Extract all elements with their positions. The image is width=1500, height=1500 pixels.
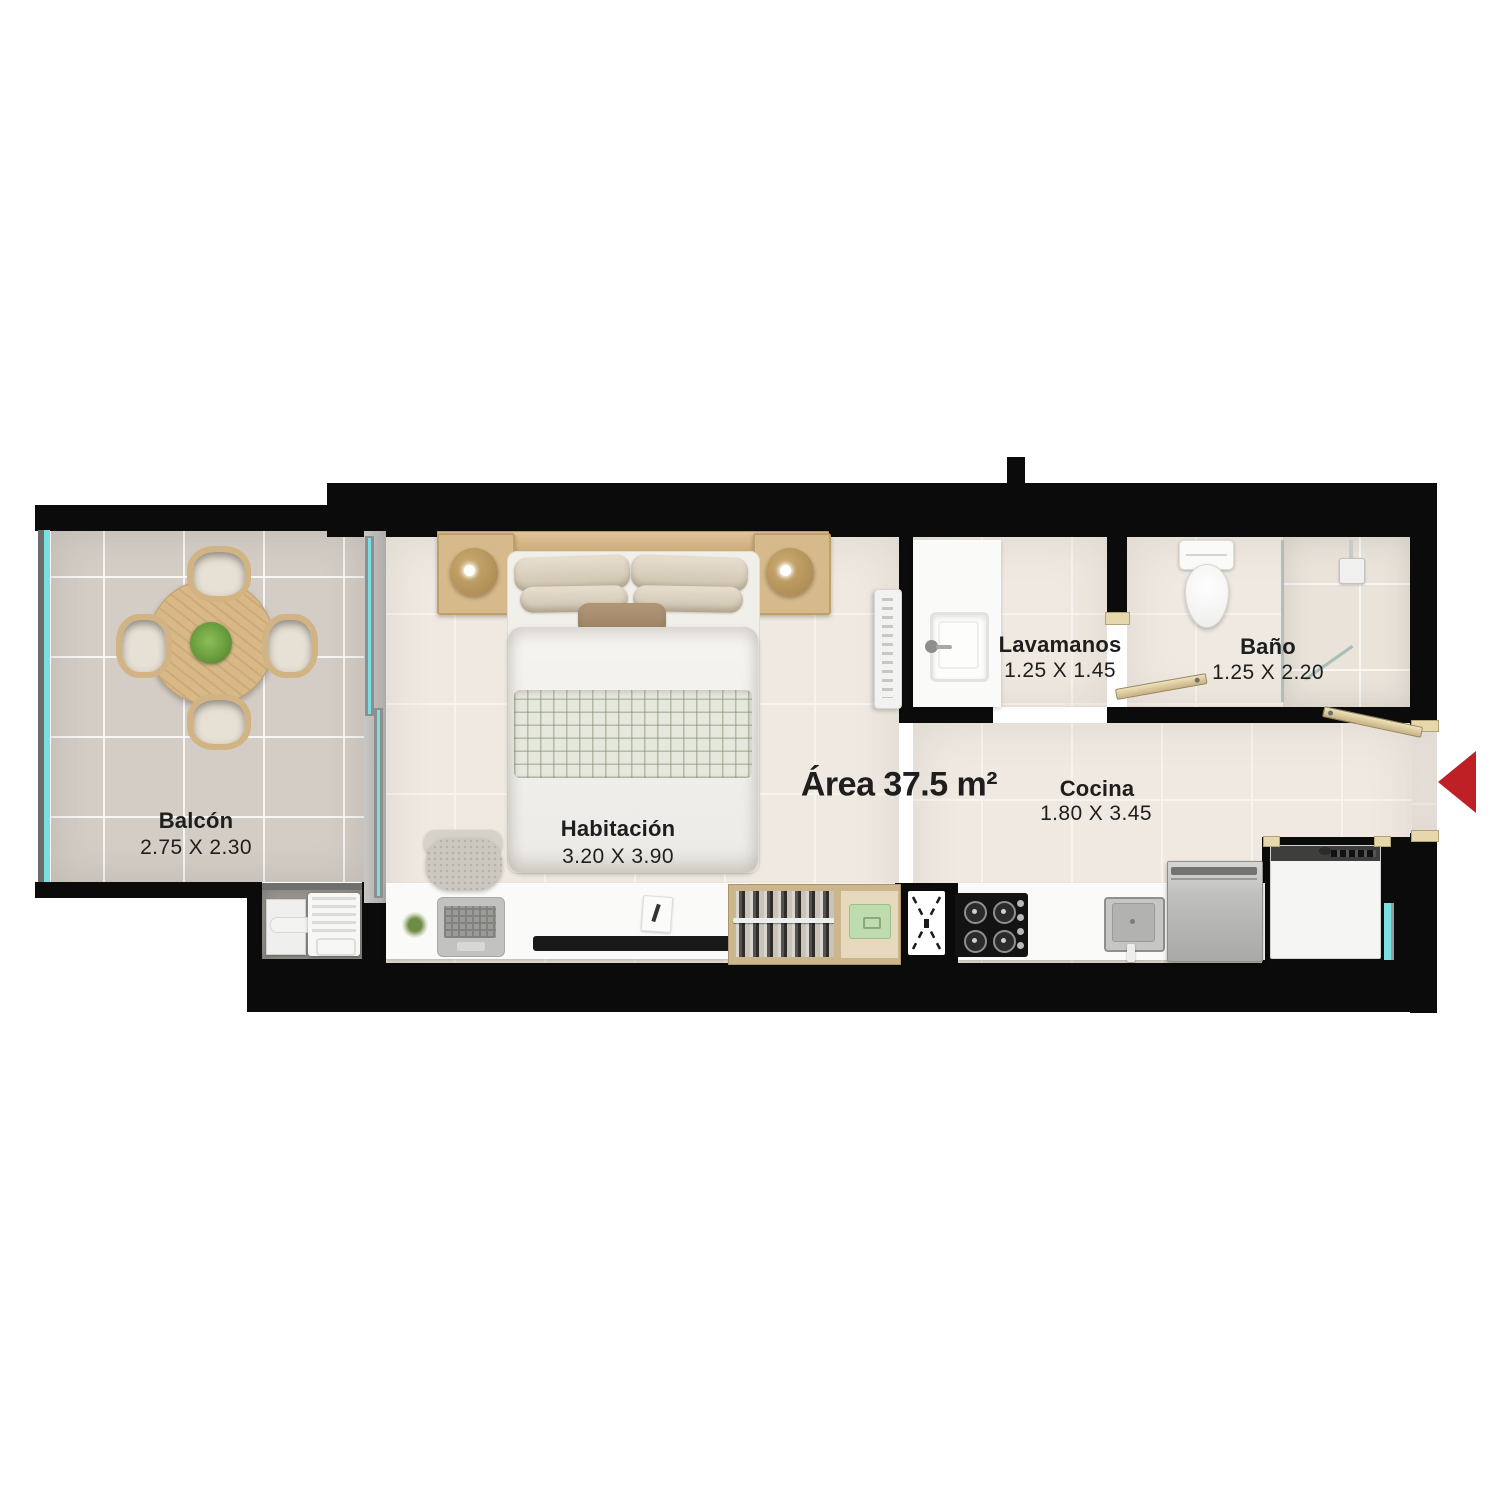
shower-head xyxy=(1339,558,1365,584)
room-label-lavamanos: Lavamanos xyxy=(999,632,1122,658)
sliding-glass-door-panel xyxy=(374,708,383,898)
wall-vanity-bottom-stub xyxy=(899,707,993,723)
notebook xyxy=(641,895,673,933)
ac-slats xyxy=(882,598,893,698)
room-label-cocina: Cocina xyxy=(1060,776,1135,802)
kitchen-faucet xyxy=(1127,944,1135,962)
dining-chair xyxy=(262,614,318,678)
dishwasher-trim xyxy=(1171,878,1257,880)
wardrobe-rail xyxy=(733,918,837,923)
room-label-habitacion: Habitación xyxy=(561,816,675,842)
room-dims-cocina: 1.80 X 3.45 xyxy=(1040,802,1152,826)
room-label-bano: Baño xyxy=(1240,634,1296,660)
duct-x-icon xyxy=(908,942,945,959)
sliding-glass-door-panel xyxy=(365,536,374,716)
wall-balcony-top xyxy=(35,505,330,531)
dining-chair xyxy=(187,546,251,602)
burner xyxy=(964,930,987,953)
wall-bottom-main xyxy=(375,963,1437,1012)
door-handle xyxy=(1194,677,1200,683)
wardrobe-divider xyxy=(834,889,841,960)
wall-main-top xyxy=(327,483,1437,537)
fridge-hinge xyxy=(1319,847,1331,855)
cooktop-knob xyxy=(1017,900,1024,907)
dining-chair xyxy=(187,694,251,750)
storage-box xyxy=(849,904,891,939)
cabinet-jamb xyxy=(1374,836,1391,847)
laundry-sink-basin xyxy=(316,938,356,956)
storage-box-handle xyxy=(863,917,881,929)
burner xyxy=(964,901,987,924)
ac-unit xyxy=(874,589,902,709)
bedside-lamp xyxy=(450,548,498,596)
dishwasher-handle xyxy=(1171,867,1257,875)
desk-plant xyxy=(402,912,428,938)
wall-top-stub xyxy=(1007,457,1025,485)
laundry-sink-ribs xyxy=(312,897,356,933)
cooktop xyxy=(955,893,1028,957)
entrance-floor xyxy=(1412,727,1437,833)
wall-vanity-bath-divider xyxy=(1107,537,1127,617)
room-dims-habitacion: 3.20 X 3.90 xyxy=(562,845,674,869)
room-dims-balcon: 2.75 X 2.30 xyxy=(140,836,252,860)
floor-plan: Balcón 2.75 X 2.30 Habitación 3.20 X 3.9… xyxy=(0,0,1500,1500)
total-area-label: Área 37.5 m² xyxy=(801,766,997,805)
entrance-arrow-icon xyxy=(1438,751,1476,813)
laundry-sink xyxy=(308,893,360,956)
desk-chair-seat xyxy=(426,838,502,890)
cooktop-knob xyxy=(1017,914,1024,921)
wall-utility-bottom xyxy=(247,959,386,1012)
utility-window-rail xyxy=(262,883,362,890)
sliding-door-glass xyxy=(377,710,380,896)
dishwasher xyxy=(1167,861,1263,962)
laptop xyxy=(437,897,505,957)
fridge-vents xyxy=(1331,850,1376,857)
room-label-balcon: Balcón xyxy=(159,808,234,834)
toilet-tank-lid-line xyxy=(1186,554,1227,556)
plaid-blanket xyxy=(514,690,752,778)
laptop-keyboard xyxy=(444,906,496,938)
wall-right-upper xyxy=(1410,483,1437,728)
cabinet-jamb xyxy=(1263,836,1280,847)
door-handle xyxy=(1328,710,1334,716)
tv xyxy=(533,936,746,951)
fridge xyxy=(1270,845,1381,959)
laptop-trackpad xyxy=(457,942,485,951)
wardrobe xyxy=(728,884,901,965)
wall-balcony-bottom xyxy=(35,882,247,898)
dining-chair xyxy=(116,614,172,678)
kitchen-sink-drain xyxy=(1130,919,1135,924)
duct-panel xyxy=(908,891,945,955)
balcony-glass-wall xyxy=(44,530,50,882)
wardrobe-clothes xyxy=(736,891,834,957)
door-jamb xyxy=(1105,612,1130,625)
burner xyxy=(993,901,1016,924)
room-dims-lavamanos: 1.25 X 1.45 xyxy=(1004,659,1116,683)
potted-plant xyxy=(190,622,232,664)
kitchen-window-frame xyxy=(1391,903,1394,960)
kitchen-window-glass xyxy=(1384,903,1391,960)
room-dims-bano: 1.25 X 2.20 xyxy=(1212,661,1324,685)
sliding-door-glass xyxy=(368,538,371,714)
door-jamb xyxy=(1411,830,1439,842)
lamp-bulb xyxy=(780,565,791,576)
burner xyxy=(993,930,1016,953)
vanity-faucet-spout xyxy=(936,645,952,649)
cooktop-knob xyxy=(1017,928,1024,935)
cooktop-knob xyxy=(1017,942,1024,949)
pencil xyxy=(651,904,660,922)
lamp-bulb xyxy=(464,565,475,576)
bedside-lamp xyxy=(766,548,814,596)
